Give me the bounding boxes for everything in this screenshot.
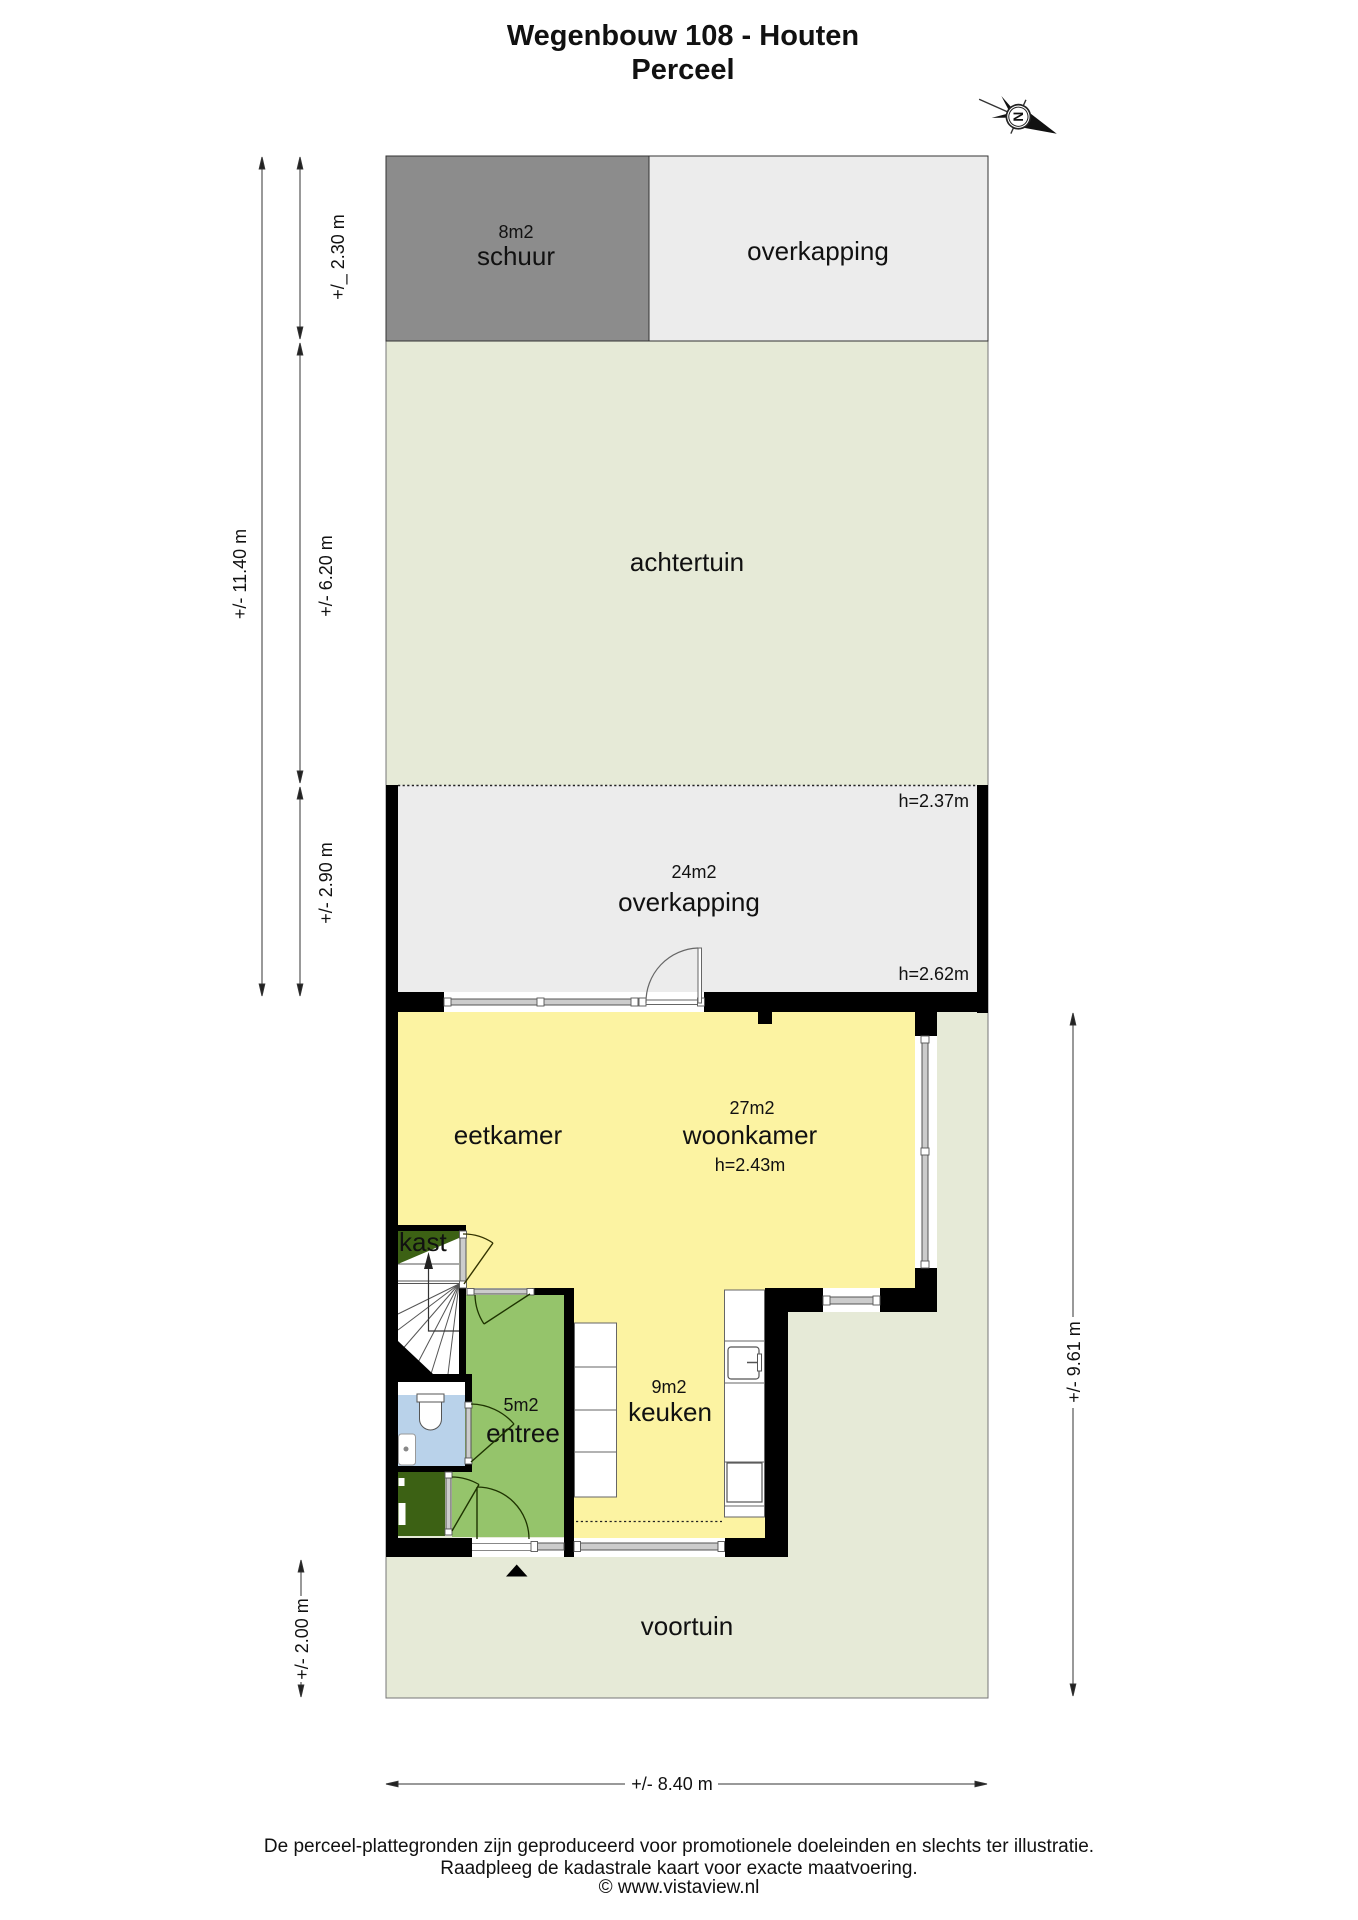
svg-text:h=2.37m: h=2.37m xyxy=(898,791,969,811)
svg-text:27m2: 27m2 xyxy=(729,1098,774,1118)
svg-text:overkapping: overkapping xyxy=(618,887,760,917)
svg-text:voortuin: voortuin xyxy=(641,1611,734,1641)
svg-text:achtertuin: achtertuin xyxy=(630,547,744,577)
svg-text:h=2.62m: h=2.62m xyxy=(898,964,969,984)
svg-text:entree: entree xyxy=(486,1418,560,1448)
svg-text:schuur: schuur xyxy=(477,241,555,271)
svg-text:Raadpleeg de kadastrale kaart: Raadpleeg de kadastrale kaart voor exact… xyxy=(440,1858,917,1879)
svg-text:N: N xyxy=(1010,112,1026,122)
svg-text:De perceel-plattegronden zijn: De perceel-plattegronden zijn geproducee… xyxy=(264,1836,1094,1857)
svg-text:24m2: 24m2 xyxy=(671,862,716,882)
svg-text:9m2: 9m2 xyxy=(651,1377,686,1397)
svg-text:+/- 2.90 m: +/- 2.90 m xyxy=(316,842,336,924)
svg-text:h=2.43m: h=2.43m xyxy=(715,1155,786,1175)
svg-text:eetkamer: eetkamer xyxy=(454,1120,563,1150)
svg-text:overkapping: overkapping xyxy=(747,236,889,266)
svg-text:+/- 6.20 m: +/- 6.20 m xyxy=(316,535,336,617)
svg-text:© www.vistaview.nl: © www.vistaview.nl xyxy=(599,1877,760,1898)
svg-text:keuken: keuken xyxy=(628,1397,712,1427)
svg-text:5m2: 5m2 xyxy=(503,1395,538,1415)
svg-text:kast: kast xyxy=(399,1227,447,1257)
svg-text:+/- 2.00 m: +/- 2.00 m xyxy=(292,1598,312,1680)
svg-text:+/- 11.40 m: +/- 11.40 m xyxy=(230,529,250,619)
svg-text:+/- 9.61 m: +/- 9.61 m xyxy=(1064,1321,1084,1403)
svg-text:+/- 8.40 m: +/- 8.40 m xyxy=(631,1774,713,1794)
svg-text:+/_ 2.30 m: +/_ 2.30 m xyxy=(328,214,349,300)
svg-text:woonkamer: woonkamer xyxy=(682,1120,818,1150)
svg-text:8m2: 8m2 xyxy=(498,222,533,242)
svg-text:Wegenbouw 108 - Houten: Wegenbouw 108 - Houten xyxy=(507,20,859,52)
svg-text:Perceel: Perceel xyxy=(631,54,734,86)
